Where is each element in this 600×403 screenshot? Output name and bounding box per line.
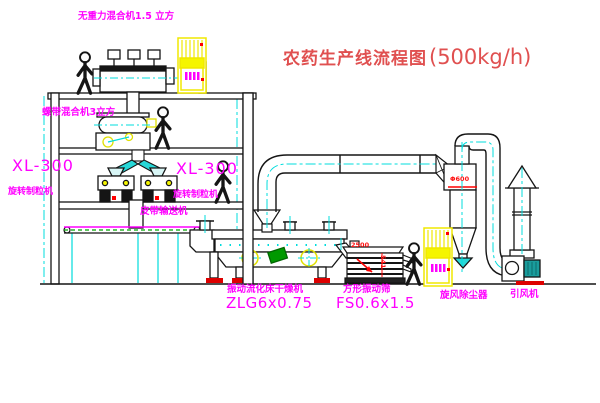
control-cabinet-1: [178, 38, 206, 93]
label-screen-height-dim: 541: [380, 255, 387, 269]
floor2-beam: [52, 148, 252, 154]
title-chinese: 农药生产线流程图: [283, 44, 427, 69]
control-cabinet-2: [424, 228, 452, 286]
label-cyclone: 旋风除尘器: [440, 291, 488, 301]
label-fan: 引风机: [510, 290, 539, 300]
right-column-front: [243, 93, 253, 284]
belt-conveyor: [64, 227, 200, 283]
human-figure: [156, 107, 170, 148]
label-cyclone-dim: Φ600: [450, 176, 469, 183]
label-ribbon-mixer: 螺带混合机3立方: [42, 108, 115, 118]
label-belt-conveyor: 皮带输送机: [140, 207, 188, 217]
fan-base: [516, 281, 544, 285]
title-capacity: (500kg/h): [429, 45, 531, 69]
label-xl300-left: XL-300: [12, 158, 74, 174]
induced-draft-fan: [502, 256, 544, 285]
granulator-left: [98, 168, 134, 202]
human-figure: [407, 243, 421, 284]
label-screen-model: FS0.6x1.5: [336, 296, 415, 311]
flow-diagram-canvas: 农药生产线流程图 (500kg/h) 无重力混合机1.5 立方 螺带混合机3立方…: [0, 0, 600, 403]
exhaust-duct: [254, 155, 450, 232]
page-title: 农药生产线流程图 (500kg/h): [283, 44, 531, 69]
granulator-right: [141, 168, 177, 202]
label-granulator-mid: 旋转制粒机: [173, 191, 218, 200]
label-xl300-mid: XL-300: [176, 161, 238, 177]
ribbon-mixer: [94, 113, 156, 150]
human-figure: [78, 52, 92, 93]
label-dryer-model: ZLG6x0.75: [226, 296, 313, 311]
label-gravity-mixer: 无重力混合机1.5 立方: [78, 12, 174, 22]
label-granulator-left: 旋转制粒机: [8, 188, 53, 197]
label-screen-width-dim: 2500: [351, 242, 369, 249]
discharge-valve: [454, 258, 472, 268]
